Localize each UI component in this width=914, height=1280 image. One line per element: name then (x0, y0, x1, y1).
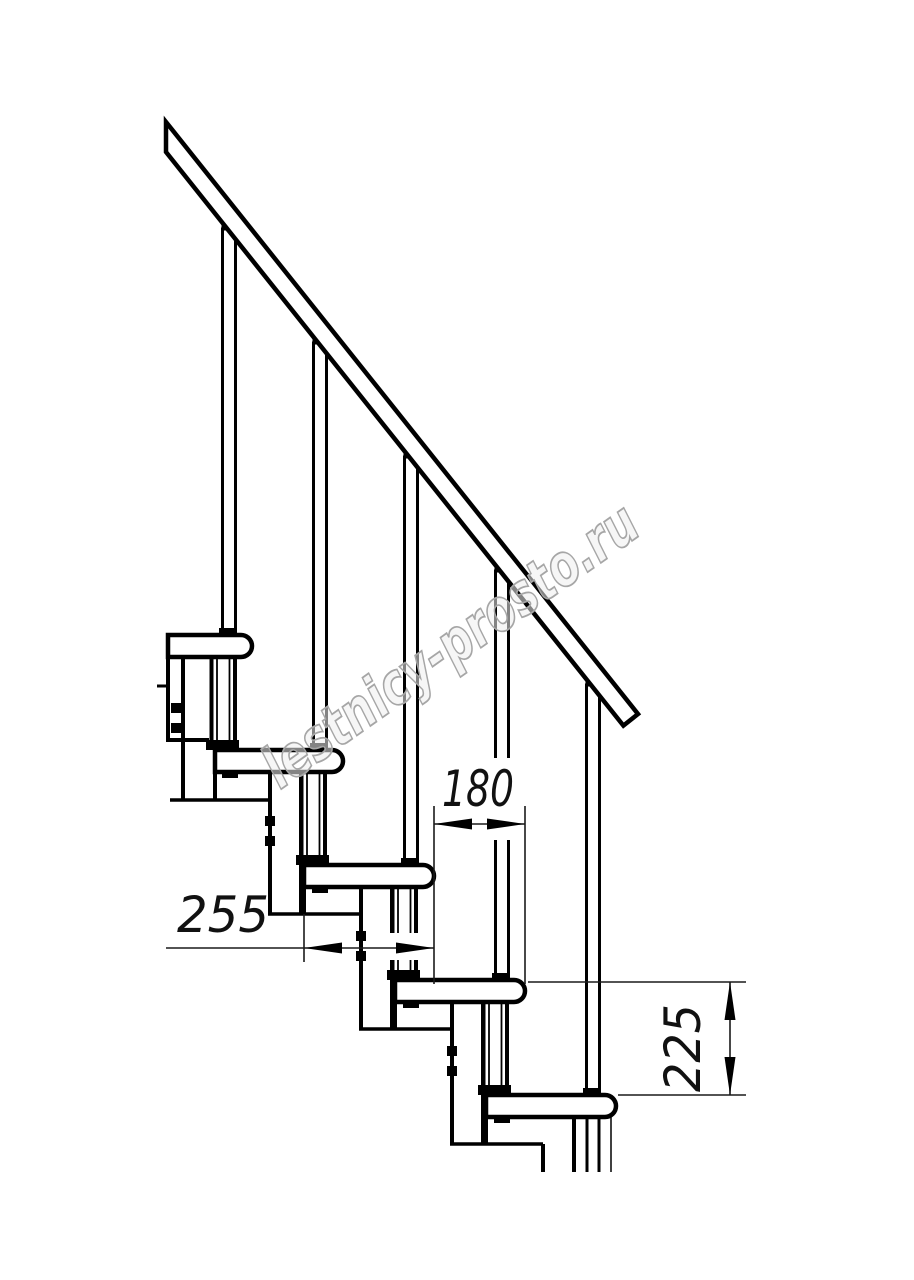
bolt (447, 1046, 457, 1056)
arrowhead-down-icon (725, 1057, 736, 1095)
bolt (265, 816, 275, 826)
drawing-svg: 180 255 225 lestnicy-prosto.ru (0, 0, 914, 1280)
baluster-5 (583, 681, 601, 1095)
stand-pipe (393, 887, 417, 973)
bolt (356, 931, 366, 941)
staircase-technical-drawing: 180 255 225 lestnicy-prosto.ru (0, 0, 914, 1280)
bolt (447, 1066, 457, 1076)
bolt (171, 723, 181, 733)
dimension-label-225: 225 (654, 1004, 712, 1092)
support-module-4 (395, 1001, 543, 1144)
arrowhead-up-icon (725, 982, 736, 1020)
dimension-label-180: 180 (442, 760, 514, 818)
dimension-label-255: 255 (177, 886, 269, 944)
dimension-step-run: 180 (434, 760, 525, 984)
bolt (171, 703, 181, 713)
dimension-step-rise: 225 (528, 982, 746, 1095)
tread-5 (486, 1095, 616, 1117)
bolt (265, 836, 275, 846)
tread-4 (395, 980, 525, 1002)
baluster-1 (219, 225, 237, 635)
tread-3 (304, 865, 434, 887)
tread-1 (168, 635, 252, 657)
baluster-2 (310, 339, 328, 750)
stand-pipe (212, 657, 236, 743)
bolt (356, 951, 366, 961)
stand-pipe (484, 1002, 508, 1088)
arrowhead-left-icon (434, 819, 472, 830)
